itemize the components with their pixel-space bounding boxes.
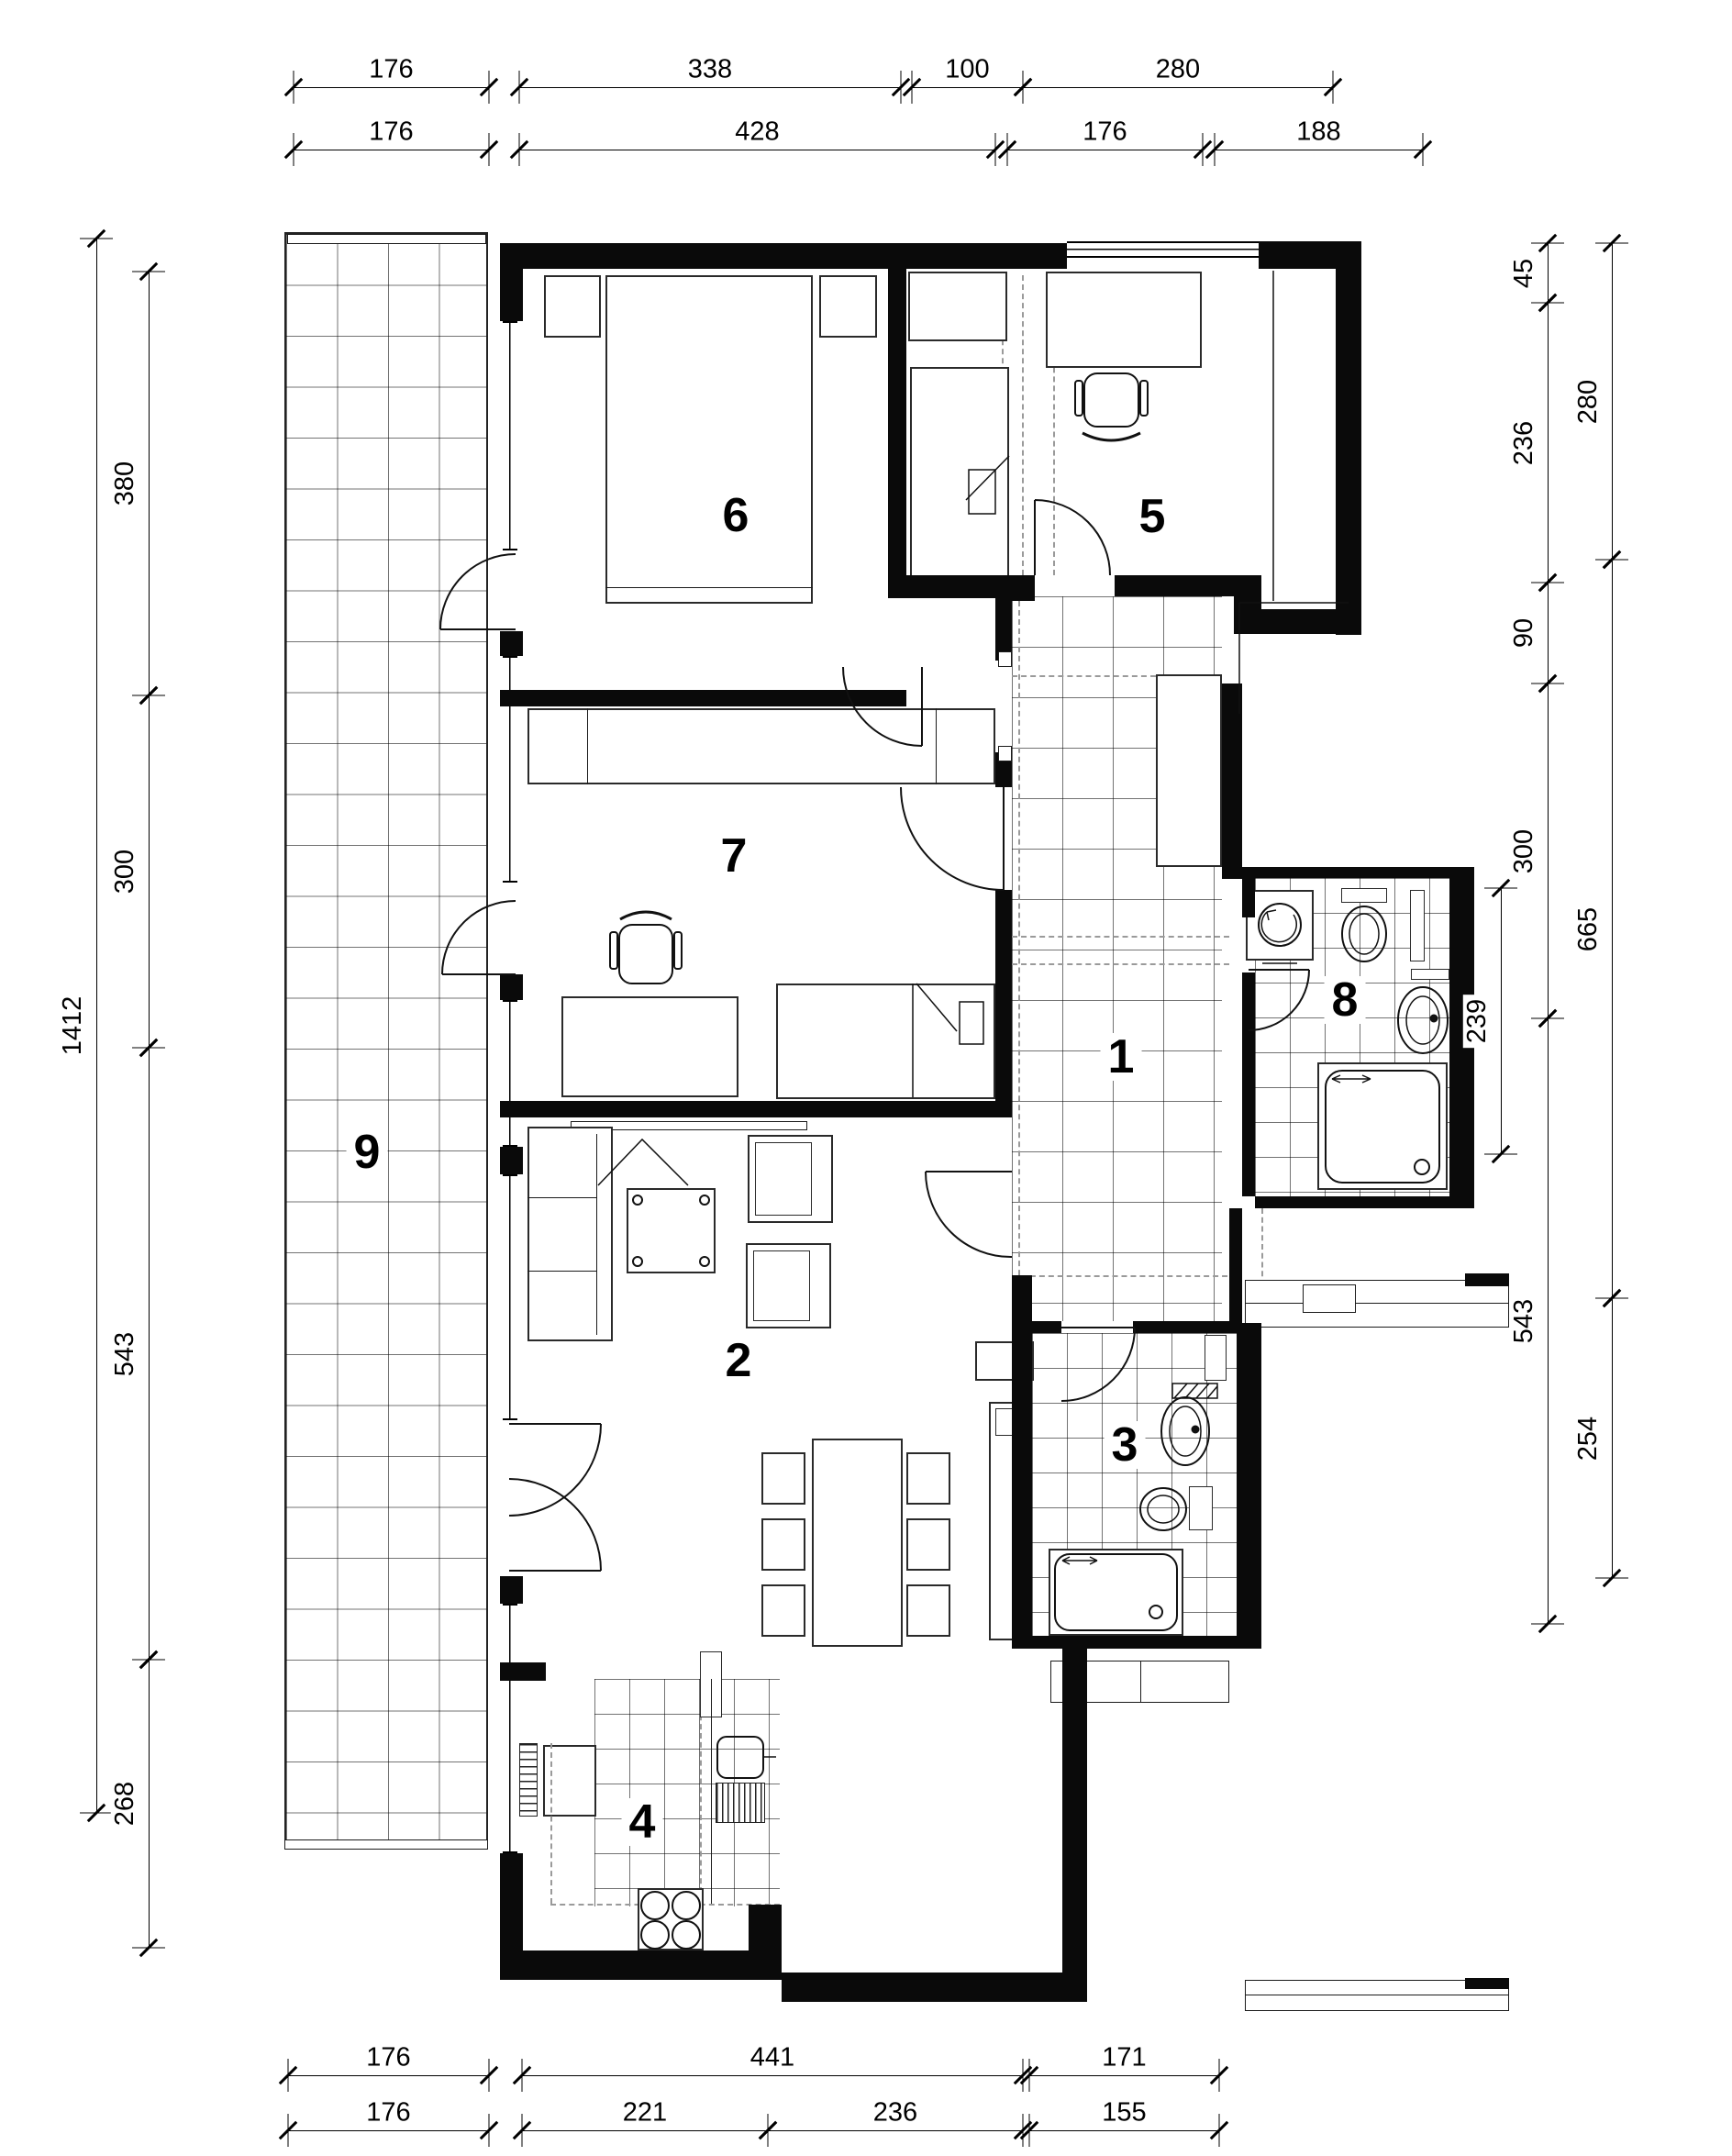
dimension-label: 300: [111, 845, 139, 898]
dining-chair: [906, 1452, 950, 1505]
dashed-line: [1022, 275, 1024, 575]
dimension-label: 239: [1463, 995, 1491, 1048]
bed-single-room7: [776, 984, 995, 1099]
dimension-line: [1007, 150, 1203, 150]
dimension-label: 441: [746, 2044, 799, 2072]
terrace-bottom-edge: [284, 1839, 488, 1850]
door-room5: [1035, 500, 1110, 575]
wall-bath3-bottom: [1012, 1636, 1261, 1649]
kitchen-cooktop: [638, 1888, 704, 1950]
wall-kitchen-left-stub: [500, 1662, 546, 1681]
dining-table: [812, 1439, 903, 1647]
armchair-seat: [753, 1250, 810, 1321]
dimension-label: 236: [869, 2099, 922, 2127]
wardrobe-divider: [587, 708, 588, 784]
dimension-line: [149, 272, 150, 695]
wall-niche-step: [998, 589, 1035, 601]
dimension-line: [912, 87, 1023, 88]
dining-chair: [906, 1584, 950, 1637]
dimension-line: [294, 87, 489, 88]
dimension-line: [1548, 583, 1549, 683]
sofa-cushion-line: [527, 1197, 596, 1198]
dimension-line: [522, 2075, 1023, 2076]
wall-room8-left-b: [1242, 972, 1255, 1196]
wall-left-chunk: [500, 974, 523, 1000]
dimension-label: 1412: [59, 992, 86, 1061]
dimension-line: [1612, 243, 1613, 560]
wall-living-right: [1062, 1649, 1087, 2002]
dimension-label: 176: [361, 2044, 415, 2072]
dashed-line: [1012, 963, 1229, 965]
room-label-4: 4: [622, 1798, 663, 1846]
dimension-line: [294, 150, 489, 150]
wall-below-room8: [1229, 1208, 1242, 1323]
terrace-top-rail: [287, 234, 486, 244]
wall-room5-step: [1234, 575, 1261, 634]
dimension-label: 176: [361, 2099, 415, 2127]
coffee-table: [627, 1188, 716, 1273]
ledge-divider: [1140, 1661, 1141, 1703]
door-hall-living: [926, 1172, 1012, 1257]
dimension-line: [1612, 1298, 1613, 1578]
wall-kitchen-step: [749, 1905, 782, 1950]
wall-room8-top: [1242, 867, 1474, 878]
wall-bath3-top-left-stub: [1032, 1321, 1061, 1333]
entry-porch: [1245, 1280, 1509, 1328]
dimension-line: [1215, 150, 1423, 150]
dimension-label: 254: [1574, 1411, 1602, 1464]
door-living-terrace-double: [509, 1424, 601, 1571]
sofa-cushion-line: [527, 1271, 596, 1272]
dimension-label: 543: [111, 1327, 139, 1380]
wardrobe-hallway: [1156, 674, 1222, 867]
bed-double: [605, 275, 813, 604]
dimension-line: [1023, 87, 1333, 88]
dimension-line: [519, 87, 901, 88]
dimension-label: 45: [1510, 253, 1538, 292]
sofa: [527, 1127, 613, 1341]
room-label-1: 1: [1101, 1033, 1142, 1081]
dimension-line: [1029, 2075, 1219, 2076]
dimension-line: [768, 2130, 1023, 2131]
room-label-9: 9: [347, 1128, 388, 1176]
nightstand: [819, 275, 877, 338]
room-label-8: 8: [1325, 976, 1366, 1024]
wall-bath3-top-right-stub: [1133, 1321, 1237, 1333]
wall-room5-bottom-a: [1115, 575, 1234, 596]
bed-double-footline: [605, 587, 813, 588]
terrace-tile-floor: [284, 232, 488, 1847]
wall-room5-bottom-b: [1261, 609, 1336, 634]
toilet-tank: [1189, 1486, 1213, 1530]
kitchen-counter-dashed: [550, 1743, 552, 1904]
wall-hall-left-c: [995, 890, 1012, 1101]
wall-room7-bottom: [500, 1101, 1012, 1117]
dimension-line: [149, 695, 150, 1048]
wardrobe-divider: [936, 708, 937, 784]
bottom-right-band-line: [1245, 1995, 1509, 1995]
bathtub: [1317, 1062, 1448, 1190]
wall-room8-left-a: [1242, 878, 1255, 917]
door-jamb: [998, 746, 1012, 761]
dimension-label: 428: [730, 118, 783, 146]
wall-bath3-right: [1237, 1323, 1261, 1649]
office-chair-room5: [1075, 373, 1148, 440]
bathtub: [1049, 1549, 1183, 1636]
dashed-line: [1012, 675, 1156, 677]
sofa-backrest-line: [596, 1134, 597, 1335]
wall-kitchen-bottom: [500, 1950, 782, 1980]
bath8-shelf-band: [1411, 969, 1449, 980]
dimension-label: 380: [111, 457, 139, 510]
dining-chair: [761, 1452, 805, 1505]
wall-left-chunk: [500, 1576, 523, 1604]
room-label-6: 6: [716, 492, 757, 539]
dimension-label: 280: [1574, 374, 1602, 428]
dimension-line: [288, 2130, 489, 2131]
dimension-line: [1548, 303, 1549, 583]
dimension-label: 300: [1510, 824, 1538, 877]
room-label-3: 3: [1105, 1421, 1146, 1469]
dimension-line: [149, 1660, 150, 1948]
dimension-label: 280: [1151, 56, 1205, 83]
entry-porch-mat: [1303, 1284, 1356, 1313]
wall-left-chunk: [500, 631, 523, 656]
dining-chair: [906, 1518, 950, 1571]
dimension-label: 236: [1510, 416, 1538, 469]
dimension-line: [522, 2130, 768, 2131]
entry-porch-wall-stub: [1465, 1273, 1509, 1286]
dimension-label: 176: [364, 56, 417, 83]
entry-porch-line: [1245, 1303, 1509, 1304]
dimension-label: 90: [1510, 614, 1538, 652]
bottom-right-wall-stub: [1465, 1978, 1509, 1989]
wardrobe-niche: [908, 272, 1007, 341]
dimension-line: [288, 2075, 489, 2076]
bed-single-niche: [910, 367, 1009, 595]
floor-plan-canvas: 123456789 176338100280176428176188176441…: [0, 0, 1732, 2156]
dining-chair: [761, 1584, 805, 1637]
dimension-line: [96, 239, 97, 1813]
wall-room6-niche: [888, 269, 906, 575]
desk-room7: [561, 996, 738, 1097]
dimension-line: [519, 150, 995, 150]
dashed-line: [1012, 936, 1229, 938]
armchair-seat: [755, 1142, 812, 1216]
wall-room5-right: [1336, 241, 1361, 635]
dimension-label: 176: [1078, 118, 1131, 146]
door-room7-hall: [901, 787, 1004, 890]
kitchen-drainer: [716, 1783, 765, 1823]
kitchen-counter-edge: [711, 1679, 712, 1904]
bath3-cabinet: [1205, 1335, 1227, 1381]
room-label-5: 5: [1132, 493, 1173, 540]
desk-room5: [1046, 272, 1202, 368]
dimension-label: 100: [940, 56, 994, 83]
window-room5-top: [1067, 241, 1259, 258]
window-room7b: [503, 1000, 517, 1147]
wall-hall-right: [1222, 683, 1242, 879]
washing-machine: [1246, 890, 1314, 961]
wall-left-chunk: [500, 269, 523, 321]
dimension-line: [1548, 683, 1549, 1018]
window-room6: [503, 321, 517, 550]
room-label-7: 7: [714, 832, 755, 880]
wardrobe-room7: [527, 708, 995, 784]
window-living: [503, 1174, 517, 1420]
dimension-label: 338: [683, 56, 737, 83]
dimension-line: [1548, 243, 1549, 303]
dimension-label: 188: [1292, 118, 1345, 146]
dimension-label: 221: [618, 2099, 672, 2127]
wall-left-chunk: [500, 1147, 523, 1174]
dimension-line: [1612, 560, 1613, 1298]
dimension-line: [1501, 888, 1502, 1154]
dashed-line: [1018, 601, 1020, 1321]
dimension-label: 543: [1510, 1295, 1538, 1348]
dashed-line: [1012, 1275, 1237, 1277]
dimension-line: [149, 1048, 150, 1660]
bath8-shelf: [1410, 890, 1425, 961]
dining-chair: [761, 1518, 805, 1571]
nightstand: [544, 275, 601, 338]
wall-room6-room7: [500, 690, 906, 706]
dimension-label: 171: [1097, 2044, 1150, 2072]
dimension-label: 176: [364, 118, 417, 146]
dimension-label: 268: [111, 1777, 139, 1830]
dimension-line: [1548, 1018, 1549, 1624]
room-label-2: 2: [718, 1337, 760, 1384]
window-kitchen: [503, 1604, 517, 1853]
office-chair-room7: [610, 912, 682, 984]
dimension-label: 665: [1574, 902, 1602, 955]
wall-bath3-left: [1012, 1275, 1032, 1649]
wall-living-bottom: [782, 1973, 1087, 2002]
radiator: [519, 1743, 538, 1817]
dimension-line: [1029, 2130, 1219, 2131]
wall-top-room6: [500, 243, 1067, 269]
door-jamb: [998, 651, 1012, 667]
toilet-tank: [1341, 888, 1387, 903]
dimension-label: 155: [1097, 2099, 1150, 2127]
wall-room8-bottom: [1255, 1196, 1474, 1208]
